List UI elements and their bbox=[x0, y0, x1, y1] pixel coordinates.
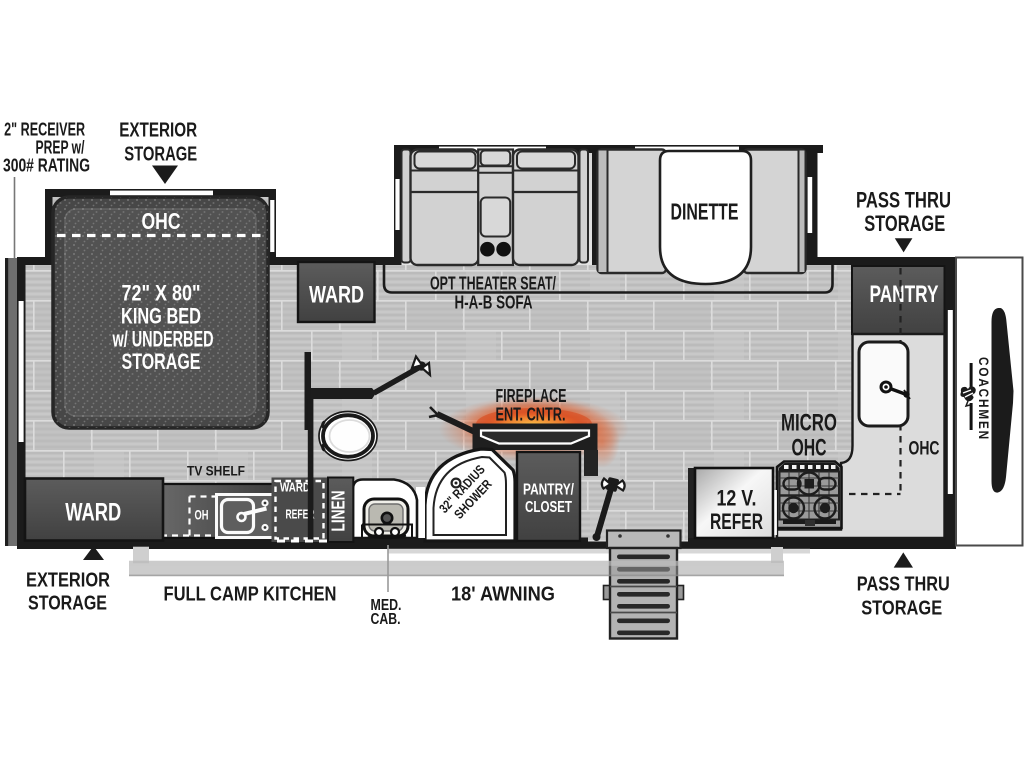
svg-text:PASS THRU: PASS THRU bbox=[857, 573, 950, 596]
svg-text:STORAGE: STORAGE bbox=[28, 592, 107, 615]
svg-text:CLOSET: CLOSET bbox=[525, 499, 572, 516]
svg-text:EXTERIOR: EXTERIOR bbox=[26, 568, 110, 591]
svg-text:72" X 80": 72" X 80" bbox=[122, 281, 201, 306]
svg-text:H-A-B SOFA: H-A-B SOFA bbox=[455, 293, 533, 313]
svg-text:2" RECEIVER: 2" RECEIVER bbox=[4, 119, 85, 139]
svg-text:MICRO: MICRO bbox=[781, 410, 837, 437]
svg-text:PASS THRU: PASS THRU bbox=[856, 188, 951, 213]
svg-text:300# RATING: 300# RATING bbox=[3, 155, 90, 175]
svg-text:FULL CAMP KITCHEN: FULL CAMP KITCHEN bbox=[164, 584, 337, 606]
svg-text:LINEN: LINEN bbox=[328, 491, 349, 532]
svg-text:STORAGE: STORAGE bbox=[864, 211, 945, 236]
svg-text:STORAGE: STORAGE bbox=[861, 596, 942, 619]
svg-text:EXTERIOR: EXTERIOR bbox=[119, 120, 197, 142]
svg-text:18' AWNING: 18' AWNING bbox=[451, 584, 555, 606]
svg-text:12 V.: 12 V. bbox=[717, 486, 757, 511]
svg-text:TV SHELF: TV SHELF bbox=[187, 463, 245, 479]
svg-text:KING BED: KING BED bbox=[121, 304, 201, 329]
svg-text:PANTRY: PANTRY bbox=[870, 281, 939, 308]
svg-text:OHC: OHC bbox=[792, 435, 827, 462]
svg-text:PANTRY/: PANTRY/ bbox=[523, 482, 574, 499]
svg-text:WARD: WARD bbox=[309, 282, 364, 309]
svg-text:WARD: WARD bbox=[65, 499, 121, 527]
svg-text:w/ UNDERBED: w/ UNDERBED bbox=[112, 327, 214, 352]
svg-text:STORAGE: STORAGE bbox=[124, 144, 197, 166]
svg-text:OHC: OHC bbox=[142, 208, 181, 234]
svg-text:WARD: WARD bbox=[280, 479, 310, 494]
svg-text:REFER: REFER bbox=[710, 509, 763, 534]
svg-text:OHC: OHC bbox=[909, 438, 940, 460]
svg-text:DINETTE: DINETTE bbox=[671, 199, 739, 225]
svg-text:OH: OH bbox=[195, 508, 209, 523]
svg-text:OPT THEATER SEAT/: OPT THEATER SEAT/ bbox=[430, 274, 556, 294]
svg-text:CAB.: CAB. bbox=[371, 611, 401, 628]
svg-text:ENT. CNTR.: ENT. CNTR. bbox=[496, 405, 566, 425]
svg-text:STORAGE: STORAGE bbox=[122, 349, 201, 374]
svg-text:FIREPLACE: FIREPLACE bbox=[496, 386, 567, 406]
svg-text:COACHMEN: COACHMEN bbox=[976, 357, 992, 441]
